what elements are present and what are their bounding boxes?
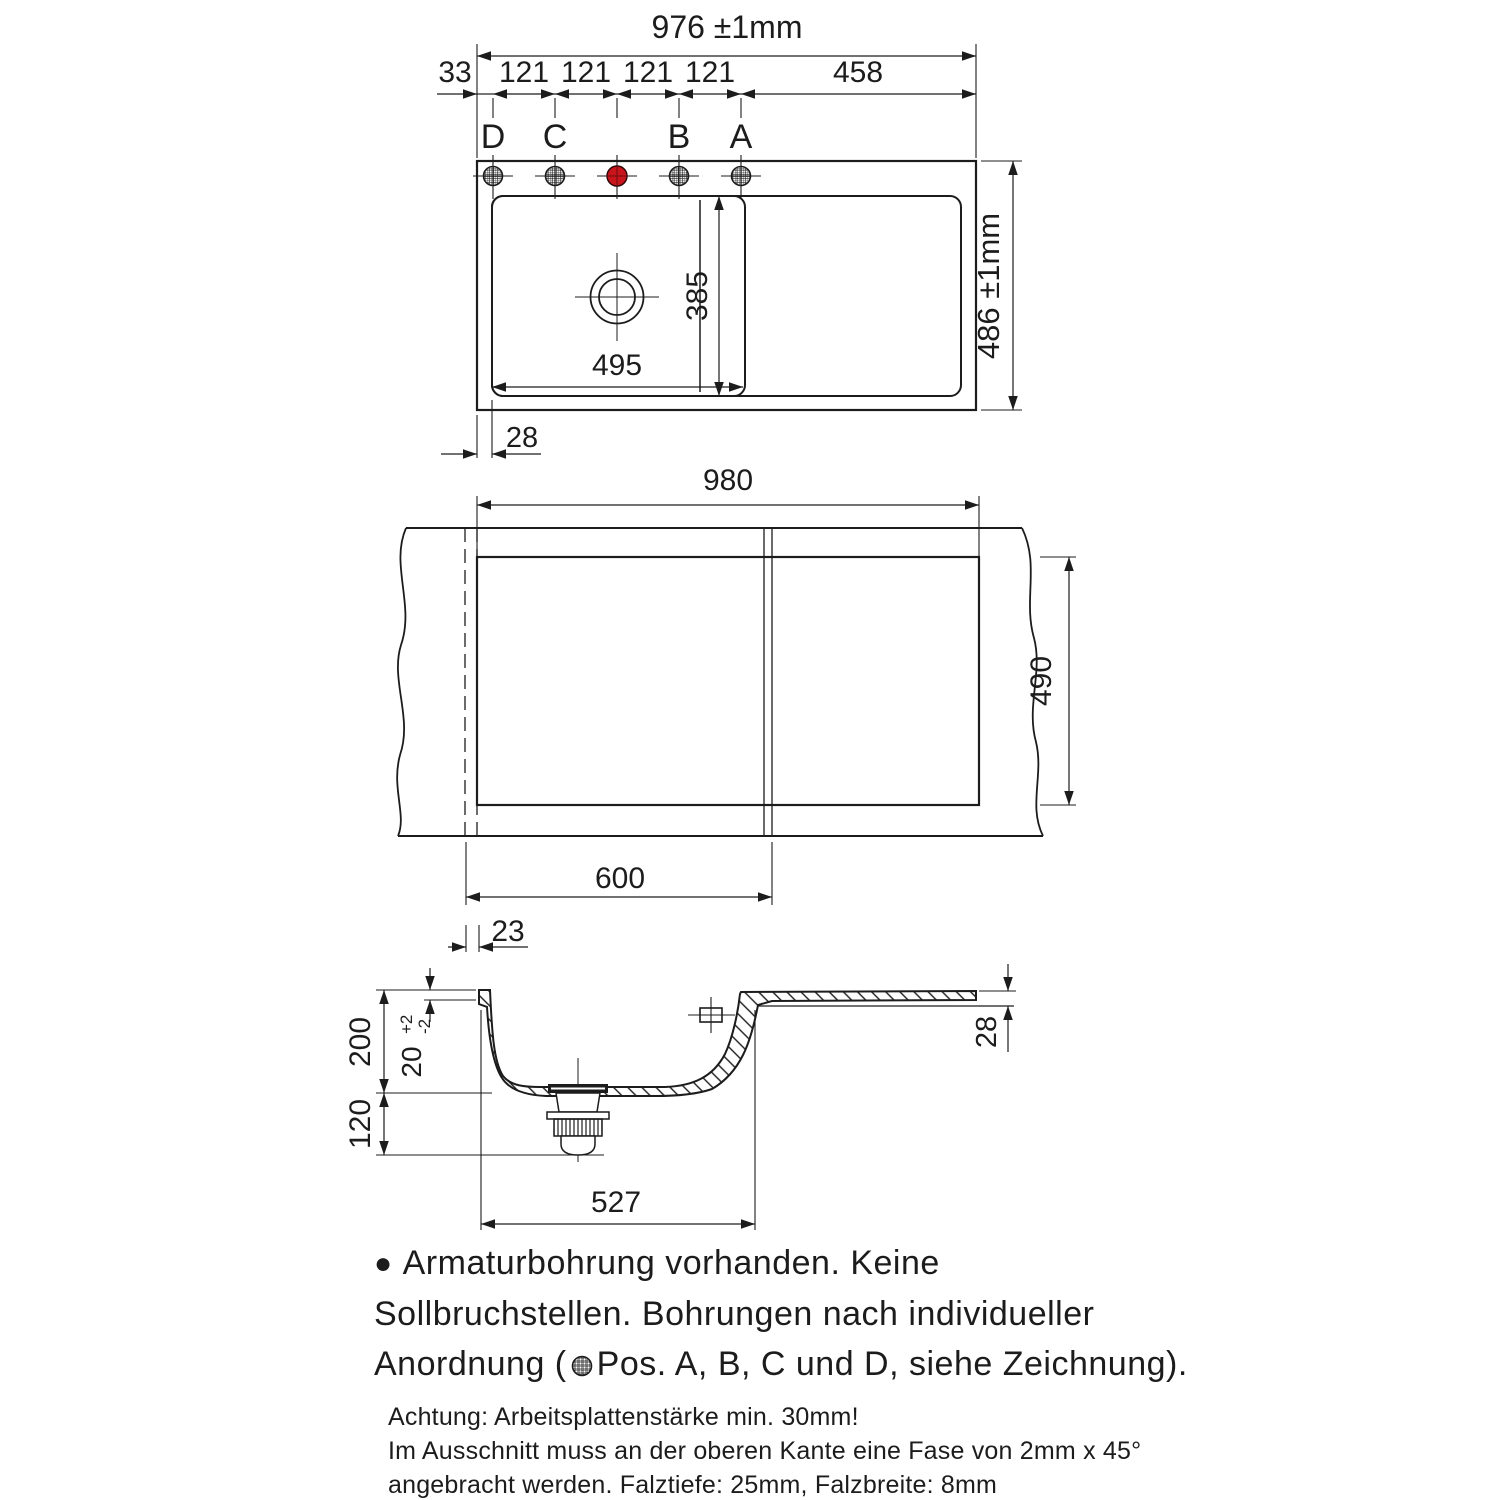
sink-rim xyxy=(492,196,961,396)
notes-line-3: Anordnung (Pos. A, B, C und D, siehe Zei… xyxy=(374,1339,1214,1392)
fine-print-line-1: Achtung: Arbeitsplattenstärke min. 30mm! xyxy=(388,1400,1488,1434)
dim-label-20-minus: -2 xyxy=(415,1019,434,1034)
dim-label-20: 20 xyxy=(396,1046,427,1077)
dim-label-bowl-width: 495 xyxy=(592,349,642,382)
hole-labels: D C B A xyxy=(481,118,753,156)
dim-label-cutout-depth: 490 xyxy=(1025,656,1058,706)
fine-print-block: Achtung: Arbeitsplattenstärke min. 30mm!… xyxy=(388,1400,1488,1500)
cutout-view: 980 490 600 23 xyxy=(397,464,1076,952)
dim-label-bowl-depth: 385 xyxy=(681,271,714,321)
sink-outline xyxy=(477,161,976,410)
technical-drawing-sheet: 976 ±1mm 33 121 121 121 121 458 D C xyxy=(0,0,1500,1500)
dim-label-458: 458 xyxy=(833,56,883,89)
notes-line-2: Sollbruchstellen. Bohrungen nach individ… xyxy=(374,1289,1214,1339)
hole-label-a: A xyxy=(730,118,753,156)
notes-line-1: ●Armaturbohrung vorhanden. Keine xyxy=(374,1238,1214,1289)
break-line-left xyxy=(397,528,406,836)
dim-cabinet-width: 600 xyxy=(466,842,772,905)
cutout-rectangle xyxy=(477,557,979,805)
dim-label-33: 33 xyxy=(438,56,471,89)
dim-cutout-width: 980 xyxy=(477,464,979,556)
dim-label-28-right: 28 xyxy=(971,1016,1003,1048)
dim-overall-depth: 486 ±1mm xyxy=(971,161,1022,410)
drain-cup xyxy=(561,1136,595,1155)
hole-symbol-icon xyxy=(569,1342,595,1392)
hole-label-b: B xyxy=(668,118,691,156)
dim-label-121d: 121 xyxy=(685,56,735,89)
dim-label-121c: 121 xyxy=(623,56,673,89)
dim-label-121b: 121 xyxy=(561,56,611,89)
dim-bowl-width: 495 xyxy=(492,349,743,387)
dim-label-cutout-width: 980 xyxy=(703,464,753,497)
dim-label-overall-depth: 486 ±1mm xyxy=(971,213,1006,359)
drain-ring xyxy=(547,1112,609,1119)
drain-assembly xyxy=(547,1058,609,1162)
top-view: 976 ±1mm 33 121 121 121 121 458 D C xyxy=(437,9,1022,458)
dim-rim-thickness: 28 xyxy=(971,964,1016,1052)
hole-label-d: D xyxy=(481,118,506,156)
hole-label-c: C xyxy=(543,118,568,156)
dim-label-cabinet-width: 600 xyxy=(595,862,645,895)
dim-label-121a: 121 xyxy=(499,56,549,89)
dim-label-120: 120 xyxy=(344,1099,377,1149)
dim-bowl-outer-width: 527 xyxy=(481,1010,755,1230)
dim-chain: 33 121 121 121 121 458 xyxy=(437,56,976,118)
dim-side-offset: 23 xyxy=(448,915,528,952)
dim-edge-offset: 28 xyxy=(441,400,541,458)
fine-print-line-2: Im Ausschnitt muss an der oberen Kante e… xyxy=(388,1434,1488,1468)
dim-edge-height: 20 +2 -2 xyxy=(396,968,476,1078)
dim-label-side-offset: 23 xyxy=(491,915,524,948)
dim-label-200: 200 xyxy=(344,1017,377,1067)
countertop-band xyxy=(397,528,1043,836)
dim-label-527: 527 xyxy=(591,1186,641,1219)
bullet-icon: ● xyxy=(374,1247,393,1280)
dim-label-20-plus: +2 xyxy=(397,1015,416,1034)
faucet-hole-marker xyxy=(688,997,735,1033)
drain-body xyxy=(556,1093,600,1112)
dim-cutout-depth: 490 xyxy=(1025,557,1076,805)
dim-label-edge-offset: 28 xyxy=(506,422,538,454)
notes-block: ●Armaturbohrung vorhanden. Keine Sollbru… xyxy=(374,1238,1214,1392)
dim-label-overall-width: 976 ±1mm xyxy=(652,9,803,45)
drain-symbol xyxy=(575,253,659,341)
section-view: 200 20 +2 -2 120 28 xyxy=(344,964,1016,1230)
drain-thread xyxy=(554,1119,602,1136)
fine-print-line-3: angebracht werden. Falztiefe: 25mm, Falz… xyxy=(388,1468,1488,1500)
